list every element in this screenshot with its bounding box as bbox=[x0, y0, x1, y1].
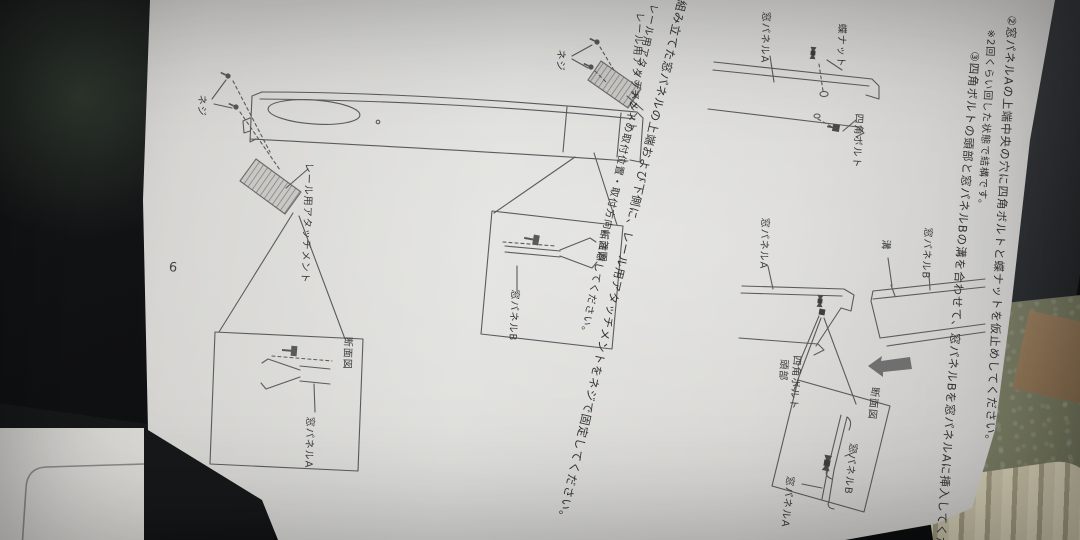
diagram-line-art bbox=[0, 0, 1080, 540]
d3-screw-left-label: ネジ bbox=[195, 94, 211, 117]
d3-section-b-panel: 窓パネルB bbox=[506, 289, 524, 342]
d1-panel-a-label: 窓パネルA bbox=[758, 11, 775, 63]
d3-section-a-panel: 窓パネルA bbox=[302, 416, 319, 468]
d1-square-bolt-label: 四角ボルト bbox=[850, 113, 868, 169]
d3-section-a-title: 断面図 bbox=[341, 336, 357, 370]
photo-scene: ②窓パネルAの上端中央の穴に四角ボルトと蝶ナットを仮止めしてください。 ※2回く… bbox=[0, 0, 1080, 540]
d2-groove-label: 溝 bbox=[879, 239, 895, 251]
d3-screw-right-label: ネジ bbox=[554, 49, 570, 72]
d3-section-b-title: 断面図 bbox=[596, 229, 613, 263]
insert-direction-arrow bbox=[868, 356, 912, 377]
d1-wing-nut-label: 蝶ナット bbox=[834, 23, 851, 67]
d2-panel-a-label: 窓パネルA bbox=[757, 217, 774, 269]
d2-panel-b-label: 窓パネルB bbox=[919, 227, 937, 280]
d2-bolt-head-label-2: 頭部 bbox=[777, 359, 793, 382]
page-number: 9 bbox=[168, 258, 178, 274]
